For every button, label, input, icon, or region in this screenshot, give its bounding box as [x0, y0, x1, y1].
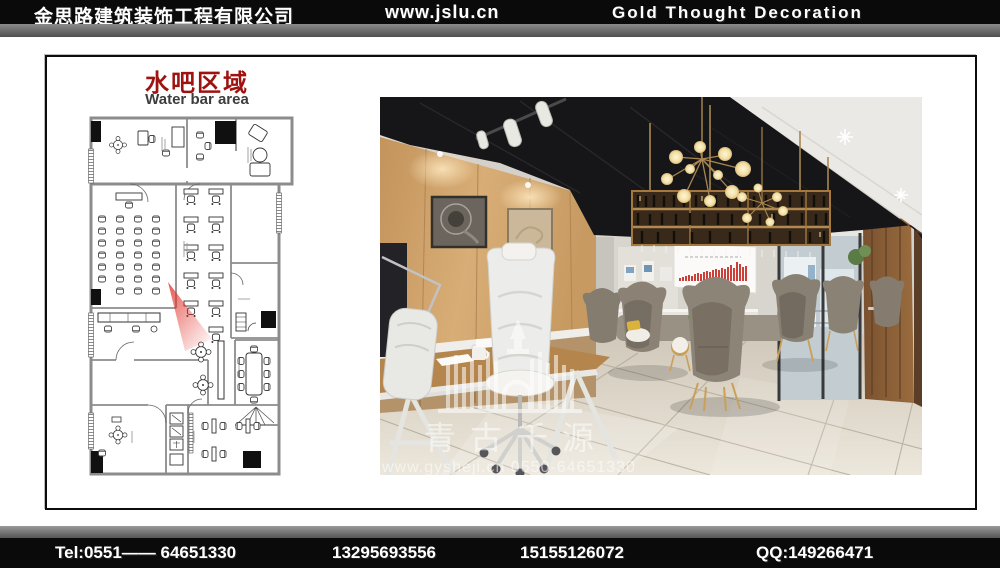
header-bar: 金思路建筑装饰工程有限公司 www.jslu.cn Gold Thought D…	[0, 0, 1000, 24]
header-divider	[0, 24, 1000, 37]
view-direction-cone	[168, 282, 212, 351]
content-panel: 水吧区域 Water bar area	[45, 55, 977, 510]
footer-phone-3: 15155126072	[520, 543, 624, 563]
company-website: www.jslu.cn	[385, 2, 499, 23]
footer-phone-2: 13295693556	[332, 543, 436, 563]
footer-qq: QQ:149266471	[756, 543, 873, 563]
footer-divider	[0, 526, 1000, 538]
floor-plan-section: 水吧区域 Water bar area	[47, 57, 347, 504]
render-photo: 青古千源 www.gysheji.cn 0550-64651330	[380, 97, 922, 475]
watermark-name: 青古千源	[424, 419, 608, 457]
plan-subtitle: Water bar area	[47, 91, 347, 108]
presentation-page: { "header": { "company_cn": "金思路建筑装饰工程有限…	[0, 0, 1000, 568]
footer-bar: Tel:0551—— 64651330 13295693556 15155126…	[0, 538, 1000, 568]
footer-tel: Tel:0551—— 64651330	[55, 543, 236, 563]
company-name-en: Gold Thought Decoration	[612, 3, 863, 23]
floor-plan-drawing	[88, 113, 300, 477]
watermark-contact: www.gysheji.cn 0550-64651330	[381, 459, 636, 475]
plan-furniture	[98, 124, 274, 465]
